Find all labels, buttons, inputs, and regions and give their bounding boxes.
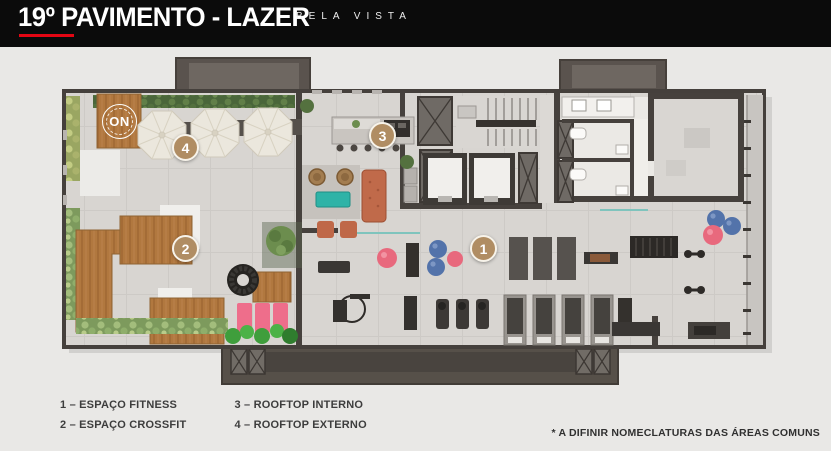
marker-espaco-crossfit: 2 [172, 235, 199, 262]
top-roof-protrusions [176, 58, 666, 94]
footnote: * A DIFINIR NOMECLATURAS DAS ÁREAS COMUN… [551, 427, 820, 439]
legend: 1 – ESPAÇO FITNESS 2 – ESPAÇO CROSSFIT 3… [60, 399, 367, 431]
on-brand-logo: ON [102, 104, 137, 139]
marker-rooftop-externo: 4 [172, 134, 199, 161]
tire [227, 264, 259, 296]
marker-espaco-fitness: 1 [470, 235, 497, 262]
umbrellas [138, 108, 292, 159]
legend-item-rooftop-interno: 3 – ROOFTOP INTERNO [234, 399, 366, 411]
tree [262, 222, 302, 268]
legend-item-fitness: 1 – ESPAÇO FITNESS [60, 399, 186, 411]
page: 19º PAVIMENTO - LAZER BELA VISTA [0, 0, 831, 451]
dumbbell-rack [630, 236, 678, 258]
bottom-balcony [222, 345, 618, 384]
elevators [423, 153, 515, 205]
legend-item-crossfit: 2 – ESPAÇO CROSSFIT [60, 419, 186, 431]
marker-rooftop-interno: 3 [369, 122, 396, 149]
on-logo-text: ON [109, 114, 130, 129]
legend-column-1: 1 – ESPAÇO FITNESS 2 – ESPAÇO CROSSFIT [60, 399, 186, 431]
stairs [456, 96, 536, 148]
legend-item-rooftop-externo: 4 – ROOFTOP EXTERNO [234, 419, 366, 431]
floor-plan [0, 0, 831, 451]
legend-column-2: 3 – ROOFTOP INTERNO 4 – ROOFTOP EXTERNO [234, 399, 366, 431]
